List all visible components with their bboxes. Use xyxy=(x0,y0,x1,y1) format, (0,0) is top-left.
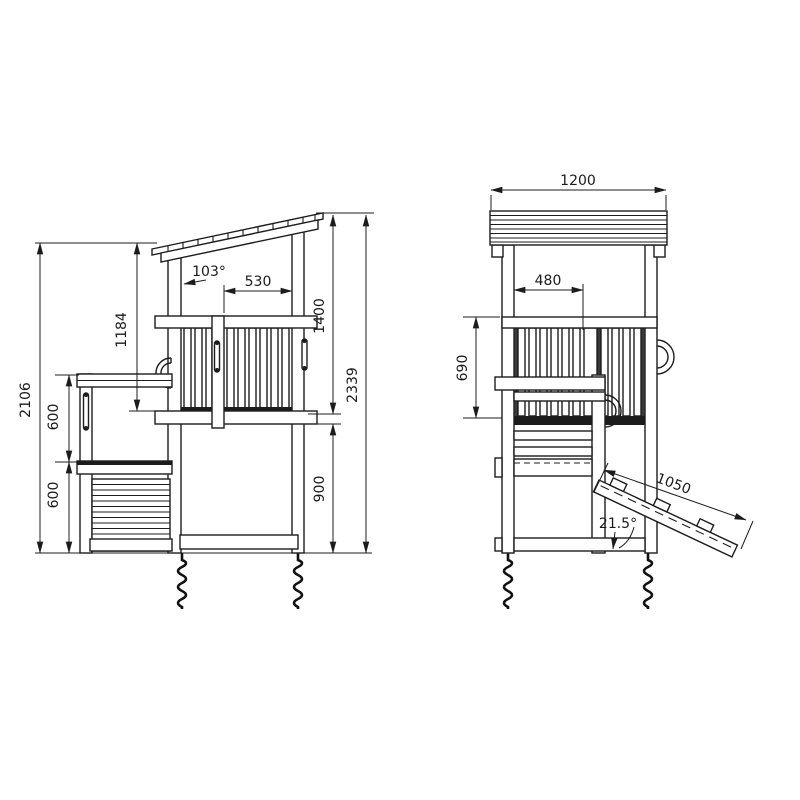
technical-drawing: 2106 1184 600 600 530 103° 1400 900 xyxy=(0,0,800,800)
front-platform-band xyxy=(514,416,645,425)
dim-label-platform-height: 900 xyxy=(312,476,328,503)
front-railing-slats xyxy=(515,328,645,416)
drawing-canvas: 2106 1184 600 600 530 103° 1400 900 xyxy=(0,0,800,800)
dim-label-counter-lower: 600 xyxy=(46,482,62,509)
side-bottom-plank xyxy=(180,535,298,549)
side-top-rail xyxy=(155,316,317,328)
front-bottom-plank xyxy=(514,538,645,551)
side-ground-screws xyxy=(178,553,302,609)
dim-label-ramp-angle: 21.5° xyxy=(599,516,637,532)
front-roof xyxy=(490,211,667,245)
dim-label-post-to-center: 480 xyxy=(535,273,562,289)
front-top-rail xyxy=(502,317,657,328)
side-view: 2106 1184 600 600 530 103° 1400 900 xyxy=(18,213,374,609)
dim-label-rail-to-table: 690 xyxy=(455,355,471,382)
front-ground-screws xyxy=(504,553,652,609)
side-platform xyxy=(155,411,317,424)
dim-label-total-height-left: 2106 xyxy=(18,382,34,418)
dim-label-roof-width: 1200 xyxy=(560,173,596,189)
side-railing-slats xyxy=(184,328,289,411)
front-tabletop xyxy=(514,459,592,476)
dim-label-roof-angle: 103° xyxy=(192,264,226,280)
side-sandbox xyxy=(90,479,172,551)
dim-label-ramp-length: 1050 xyxy=(654,471,693,498)
front-view: 1200 480 690 1050 21.5° xyxy=(455,173,753,609)
dim-label-platform-to-eave: 1184 xyxy=(114,312,130,348)
dim-label-roof-to-platform: 1400 xyxy=(312,298,328,334)
dim-label-opening-width: 530 xyxy=(245,274,272,290)
dim-label-counter-upper: 600 xyxy=(46,404,62,431)
dim-label-total-height-right: 2339 xyxy=(345,367,361,403)
front-roof-boards xyxy=(490,216,667,243)
